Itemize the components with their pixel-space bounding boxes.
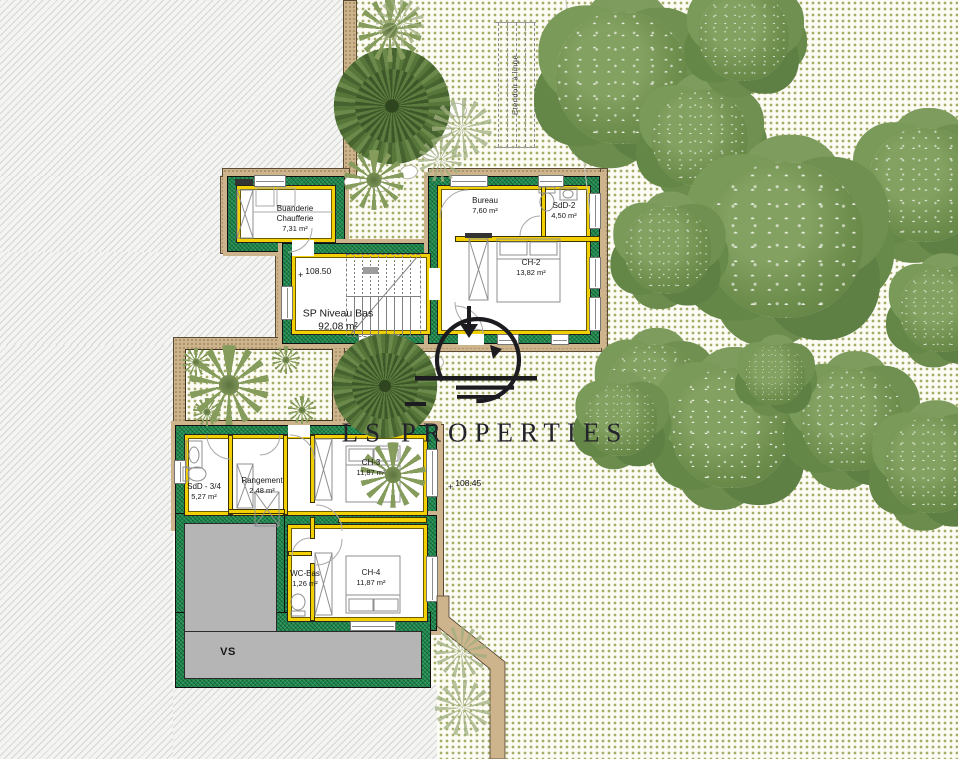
tree-icon — [868, 128, 958, 242]
logo-bar — [456, 386, 514, 390]
logo-arrow-head-icon — [490, 345, 502, 359]
room-label-ch2: CH-2 13,82 m² — [516, 258, 546, 278]
palm-plant-icon — [193, 398, 221, 426]
room-label-ch3: CH-3 11,87 m² — [356, 458, 385, 478]
room-label-sdd2: SdD-2 4,50 m² — [551, 201, 576, 221]
room-label-sdd34: SdD - 3/4 5,27 m² — [187, 482, 221, 502]
room-label-rangement: Rangement 2,48 m² — [241, 476, 282, 496]
shrub-icon — [435, 680, 491, 736]
elevation-marker-108-45: +108.45 — [450, 478, 481, 488]
palm-plant-icon — [182, 348, 210, 376]
tree-icon — [652, 90, 748, 186]
tree-icon — [745, 345, 805, 405]
cross-marker-icon: + — [448, 482, 453, 492]
room-label-wcbas: WC-Bas 1,26 m² — [290, 569, 320, 589]
tree-icon — [885, 417, 958, 513]
tree-icon — [699, 0, 789, 81]
palm-plant-icon — [288, 396, 316, 424]
room-label-vs: VS — [220, 646, 236, 660]
logo-arrow-head-icon — [460, 324, 478, 338]
shrub-icon — [376, 0, 424, 46]
elevation-marker-108-50: +108.50 — [300, 266, 331, 276]
cross-marker-icon: + — [298, 270, 303, 280]
room-label-bureau: Bureau 7,60 m² — [472, 196, 498, 216]
room-label-buanderie: Buanderie Chaufferie 7,31 m² — [277, 204, 314, 234]
logo-bar — [405, 402, 426, 406]
tree-icon — [900, 268, 958, 352]
shrub-icon — [418, 138, 462, 182]
shrub-icon — [435, 626, 487, 678]
logo-bar — [457, 395, 500, 399]
logo-bar — [415, 376, 537, 381]
palm-plant-icon — [272, 346, 300, 374]
room-label-ch4: CH-4 11,87 m² — [356, 568, 385, 588]
floor-plan-canvas: Etendoir à linge Buanderie Chaufferie 7,… — [0, 0, 958, 759]
palm-plant-icon — [344, 150, 404, 210]
level-label: SP Niveau Bas 92,08 m² — [303, 308, 373, 335]
tree-icon — [707, 162, 863, 318]
watermark-logo — [405, 300, 565, 415]
tree-icon — [625, 207, 711, 293]
watermark-brand: LS PROPERTIES — [342, 418, 629, 449]
